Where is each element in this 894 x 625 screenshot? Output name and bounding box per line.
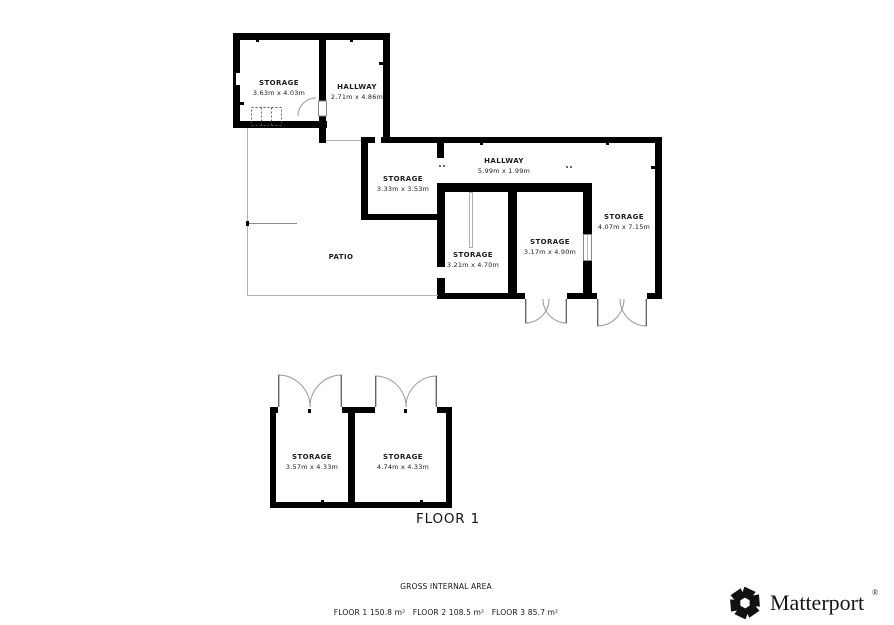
double-door-arcs (278, 299, 647, 407)
matterport-logo: Matterport ® (727, 585, 878, 621)
walls (233, 33, 662, 508)
floorplan-page: STORAGE 3.63m x 4.03m HALLWAY 2.71m x 4.… (0, 0, 894, 625)
area-summary: GROSS INTERNAL AREA FLOOR 1 150.8 m² FLO… (282, 566, 610, 625)
room-label-storage-right: STORAGE 4.07m x 7.15m (598, 213, 650, 231)
room-label-storage-bottom-left: STORAGE 3.57m x 4.33m (286, 453, 338, 471)
floor-plan-drawing (0, 0, 894, 625)
room-label-storage-mid-left: STORAGE 3.33m x 3.53m (377, 175, 429, 193)
room-label-storage-top-left: STORAGE 3.63m x 4.03m (253, 79, 305, 97)
door-leaves (279, 299, 647, 407)
wall-notch (236, 73, 240, 85)
patio-boundary (247, 128, 438, 296)
room-label-hallway-main: HALLWAY 5.99m x 1.99m (478, 157, 530, 175)
room-label-storage-bottom-right: STORAGE 4.74m x 4.33m (377, 453, 429, 471)
floor-title: FLOOR 1 (416, 511, 480, 527)
registered-mark: ® (872, 588, 878, 597)
room-label-hallway-top: HALLWAY 2.71m x 4.86m (331, 83, 383, 101)
room-label-patio: PATIO (329, 253, 354, 261)
door-single (298, 98, 327, 116)
room-label-storage-mid-center: STORAGE 3.21m x 4.70m (447, 251, 499, 269)
summary-title: GROSS INTERNAL AREA (282, 583, 610, 592)
room-label-storage-mid-right: STORAGE 3.17m x 4.90m (524, 238, 576, 256)
window-icon (584, 235, 592, 261)
partition-line (470, 193, 473, 248)
brand-wordmark: Matterport (770, 590, 864, 616)
summary-floors: FLOOR 1 150.8 m² FLOOR 2 108.5 m² FLOOR … (282, 609, 610, 618)
matterport-mark-icon (727, 585, 763, 621)
